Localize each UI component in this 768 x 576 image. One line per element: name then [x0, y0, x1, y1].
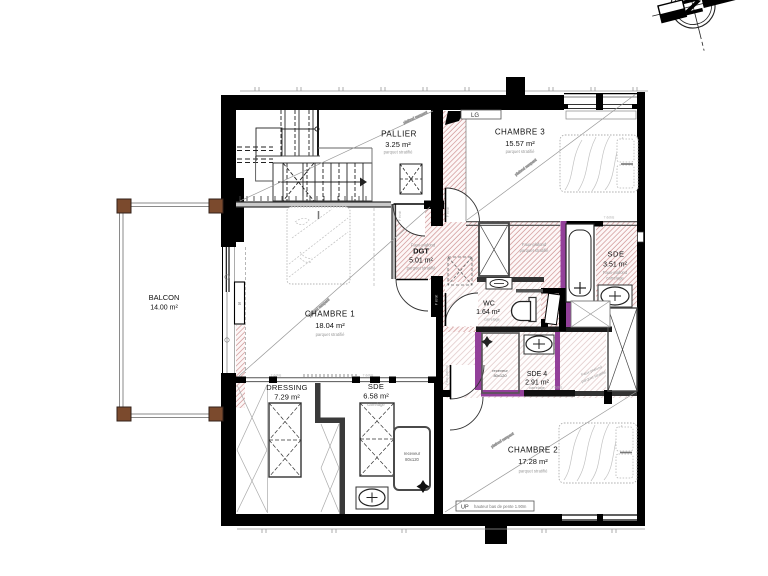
svg-text:SDE: SDE: [608, 250, 625, 259]
svg-text:SDE: SDE: [368, 382, 384, 391]
svg-text:parquet stratifié: parquet stratifié: [316, 332, 346, 337]
svg-text:1.64 m²: 1.64 m²: [476, 309, 500, 316]
svg-text:Faux-plafond: Faux-plafond: [603, 270, 628, 275]
svg-text:DGT: DGT: [413, 247, 429, 256]
svg-text:7 débis: 7 débis: [363, 374, 374, 378]
svg-text:UP: UP: [461, 505, 469, 511]
svg-text:15.57 m²: 15.57 m²: [505, 139, 535, 148]
svg-text:parquet stratifié: parquet stratifié: [520, 248, 550, 253]
svg-text:carrelage: carrelage: [484, 318, 500, 322]
svg-text:80x120: 80x120: [493, 373, 507, 378]
svg-text:P étroit: P étroit: [446, 207, 450, 217]
svg-text:Faux-plafond: Faux-plafond: [445, 365, 449, 384]
svg-text:SDE 4: SDE 4: [527, 371, 547, 378]
svg-text:LG: LG: [471, 113, 479, 119]
svg-text:Faux-plafond: Faux-plafond: [522, 242, 547, 247]
svg-text:7 débis: 7 débis: [271, 374, 282, 378]
svg-text:parquet stratifié: parquet stratifié: [506, 149, 536, 154]
svg-text:DRESSING: DRESSING: [266, 383, 308, 392]
svg-text:CHAMBRE 3: CHAMBRE 3: [495, 128, 545, 137]
svg-text:18.04 m²: 18.04 m²: [315, 321, 345, 330]
svg-text:P étroit: P étroit: [435, 295, 439, 305]
svg-text:BALCON: BALCON: [149, 293, 180, 302]
svg-text:3.25 m²: 3.25 m²: [385, 140, 411, 149]
svg-text:P étroit: P étroit: [398, 211, 402, 221]
svg-text:parquet stratifié: parquet stratifié: [384, 150, 414, 155]
svg-text:receveur: receveur: [404, 451, 421, 456]
svg-text:carrelage: carrelage: [367, 402, 385, 407]
svg-text:hauteur bas de pente 1.90m: hauteur bas de pente 1.90m: [474, 504, 527, 509]
svg-text:17.28 m²: 17.28 m²: [518, 457, 548, 466]
svg-text:6.58 m²: 6.58 m²: [363, 392, 389, 401]
svg-text:3.51 m²: 3.51 m²: [603, 262, 627, 269]
svg-text:14.00 m²: 14.00 m²: [150, 305, 178, 312]
svg-text:5.01 m²: 5.01 m²: [409, 258, 433, 265]
svg-text:CHAMBRE 1: CHAMBRE 1: [305, 310, 355, 319]
svg-text:80x120: 80x120: [405, 457, 419, 462]
svg-text:PALLIER: PALLIER: [381, 130, 417, 139]
svg-text:7.29 m²: 7.29 m²: [274, 393, 300, 402]
svg-text:S: S: [238, 301, 241, 306]
svg-text:carrelage: carrelage: [529, 386, 545, 390]
svg-text:7 débis: 7 débis: [552, 386, 563, 390]
svg-text:parquet stratifié: parquet stratifié: [407, 266, 437, 271]
svg-text:carrelage: carrelage: [606, 276, 624, 281]
svg-text:parquet stratifié: parquet stratifié: [519, 469, 549, 474]
svg-text:7 débis: 7 débis: [604, 216, 615, 220]
svg-text:CHAMBRE 2: CHAMBRE 2: [508, 446, 558, 455]
svg-text:WC: WC: [483, 301, 495, 308]
